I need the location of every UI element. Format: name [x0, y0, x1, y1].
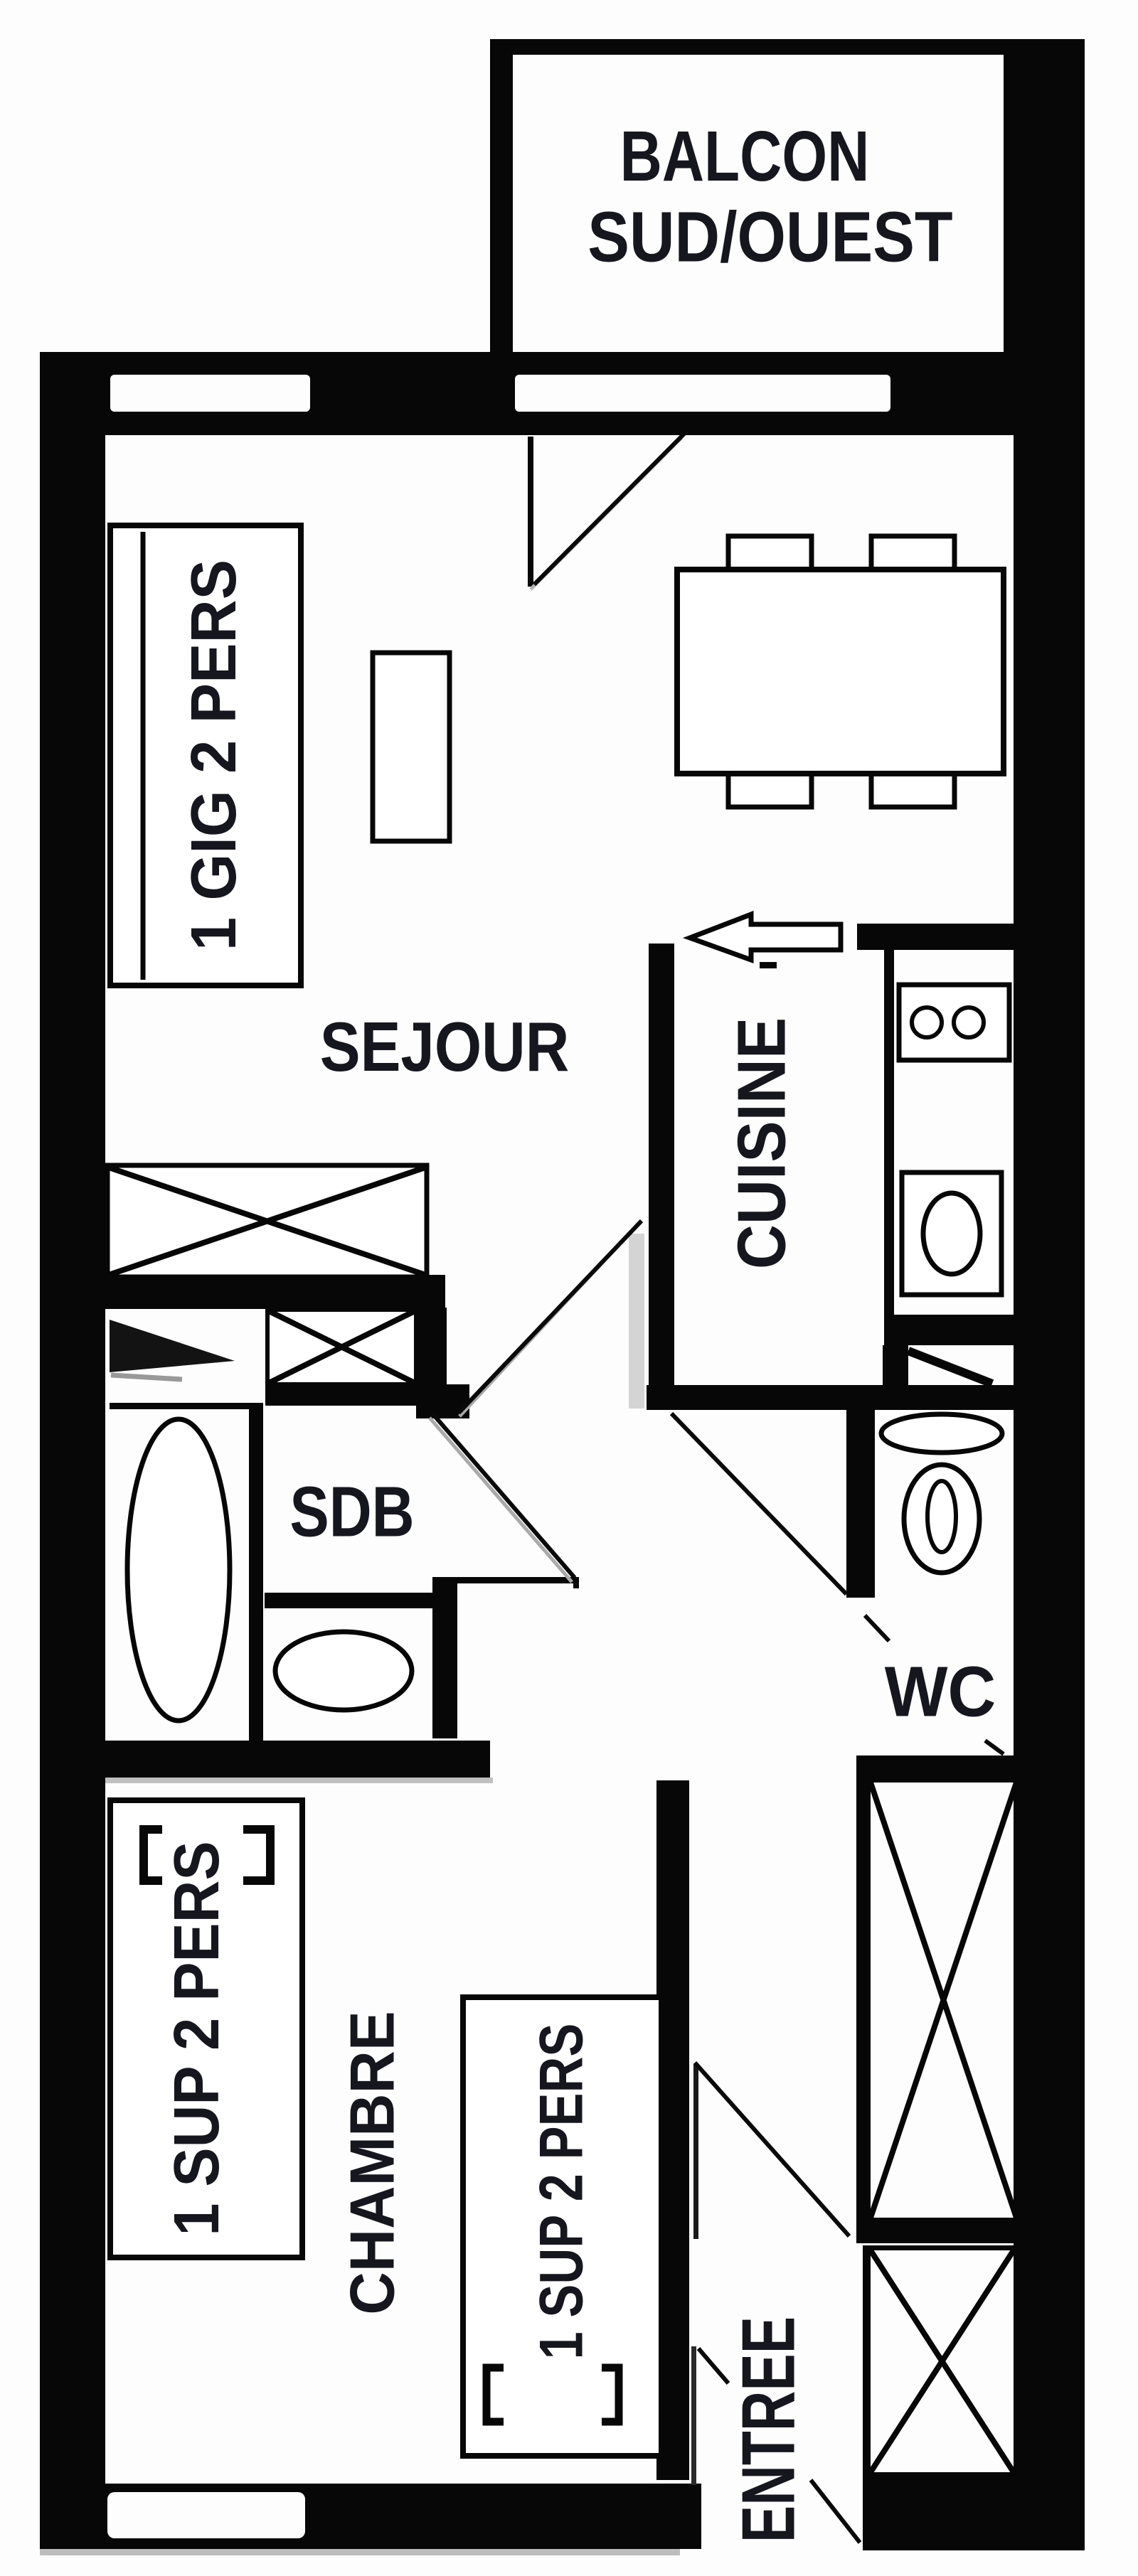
svg-text:WC: WC [885, 1652, 996, 1731]
svg-text:1 GIG 2 PERS: 1 GIG 2 PERS [178, 560, 250, 951]
svg-text:BALCON: BALCON [620, 117, 870, 196]
svg-text:CHAMBRE: CHAMBRE [338, 2011, 408, 2314]
svg-text:SUD/OUEST: SUD/OUEST [587, 197, 952, 276]
svg-text:SEJOUR: SEJOUR [320, 1009, 570, 1086]
svg-text:SDB: SDB [289, 1473, 414, 1552]
svg-text:1 SUP 2 PERS: 1 SUP 2 PERS [527, 2024, 595, 2360]
svg-text:ENTREE: ENTREE [726, 2316, 810, 2543]
svg-text:1 SUP 2 PERS: 1 SUP 2 PERS [161, 1841, 233, 2235]
svg-text:CUISINE: CUISINE [724, 1017, 800, 1269]
